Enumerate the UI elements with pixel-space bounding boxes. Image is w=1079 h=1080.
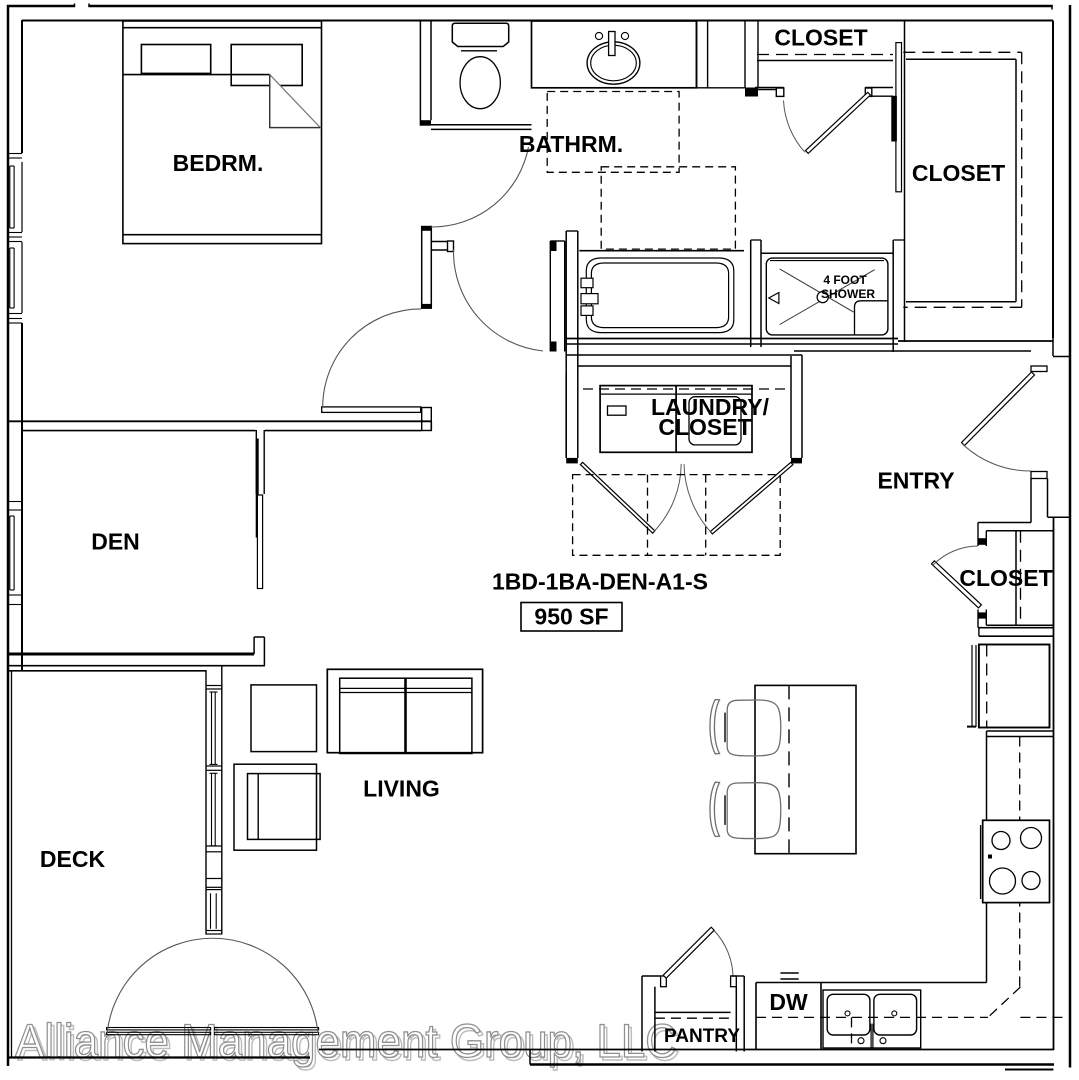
svg-text:DW: DW — [769, 989, 808, 1015]
svg-text:BEDRM.: BEDRM. — [173, 150, 264, 176]
svg-text:ENTRY: ENTRY — [877, 468, 954, 494]
svg-text:LIVING: LIVING — [363, 776, 440, 802]
svg-text:DEN: DEN — [91, 529, 140, 555]
svg-text:CLOSET: CLOSET — [912, 160, 1005, 186]
svg-text:BATHRM.: BATHRM. — [519, 131, 623, 157]
svg-text:4 FOOT: 4 FOOT — [823, 273, 867, 287]
svg-text:1BD-1BA-DEN-A1-S: 1BD-1BA-DEN-A1-S — [492, 569, 708, 595]
svg-text:CLOSET: CLOSET — [658, 414, 751, 440]
svg-text:CLOSET: CLOSET — [959, 565, 1052, 591]
svg-text:950 SF: 950 SF — [534, 604, 608, 630]
svg-text:CLOSET: CLOSET — [774, 25, 867, 51]
svg-text:DECK: DECK — [40, 846, 106, 872]
svg-text:PANTRY: PANTRY — [664, 1026, 740, 1047]
svg-text:Alliance Management Group, LLC: Alliance Management Group, LLC — [15, 1014, 677, 1067]
svg-text:SHOWER: SHOWER — [821, 287, 875, 301]
